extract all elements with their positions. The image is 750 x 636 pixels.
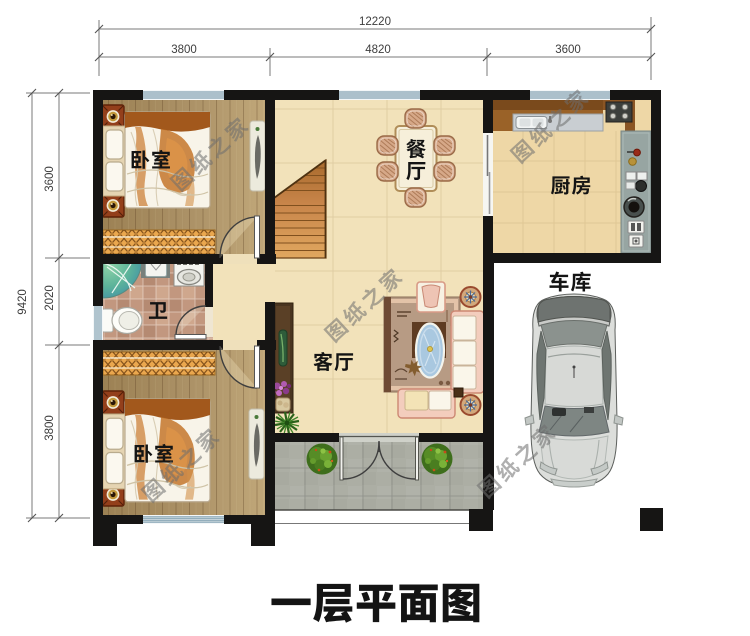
svg-text:3600: 3600 [555,44,581,56]
svg-text:3600: 3600 [44,166,56,192]
svg-text:2020: 2020 [44,285,56,311]
svg-text:3800: 3800 [171,44,197,56]
svg-text:12220: 12220 [359,16,391,28]
svg-text:9420: 9420 [17,289,29,315]
svg-text:3800: 3800 [44,415,56,441]
svg-text:4820: 4820 [365,44,391,56]
